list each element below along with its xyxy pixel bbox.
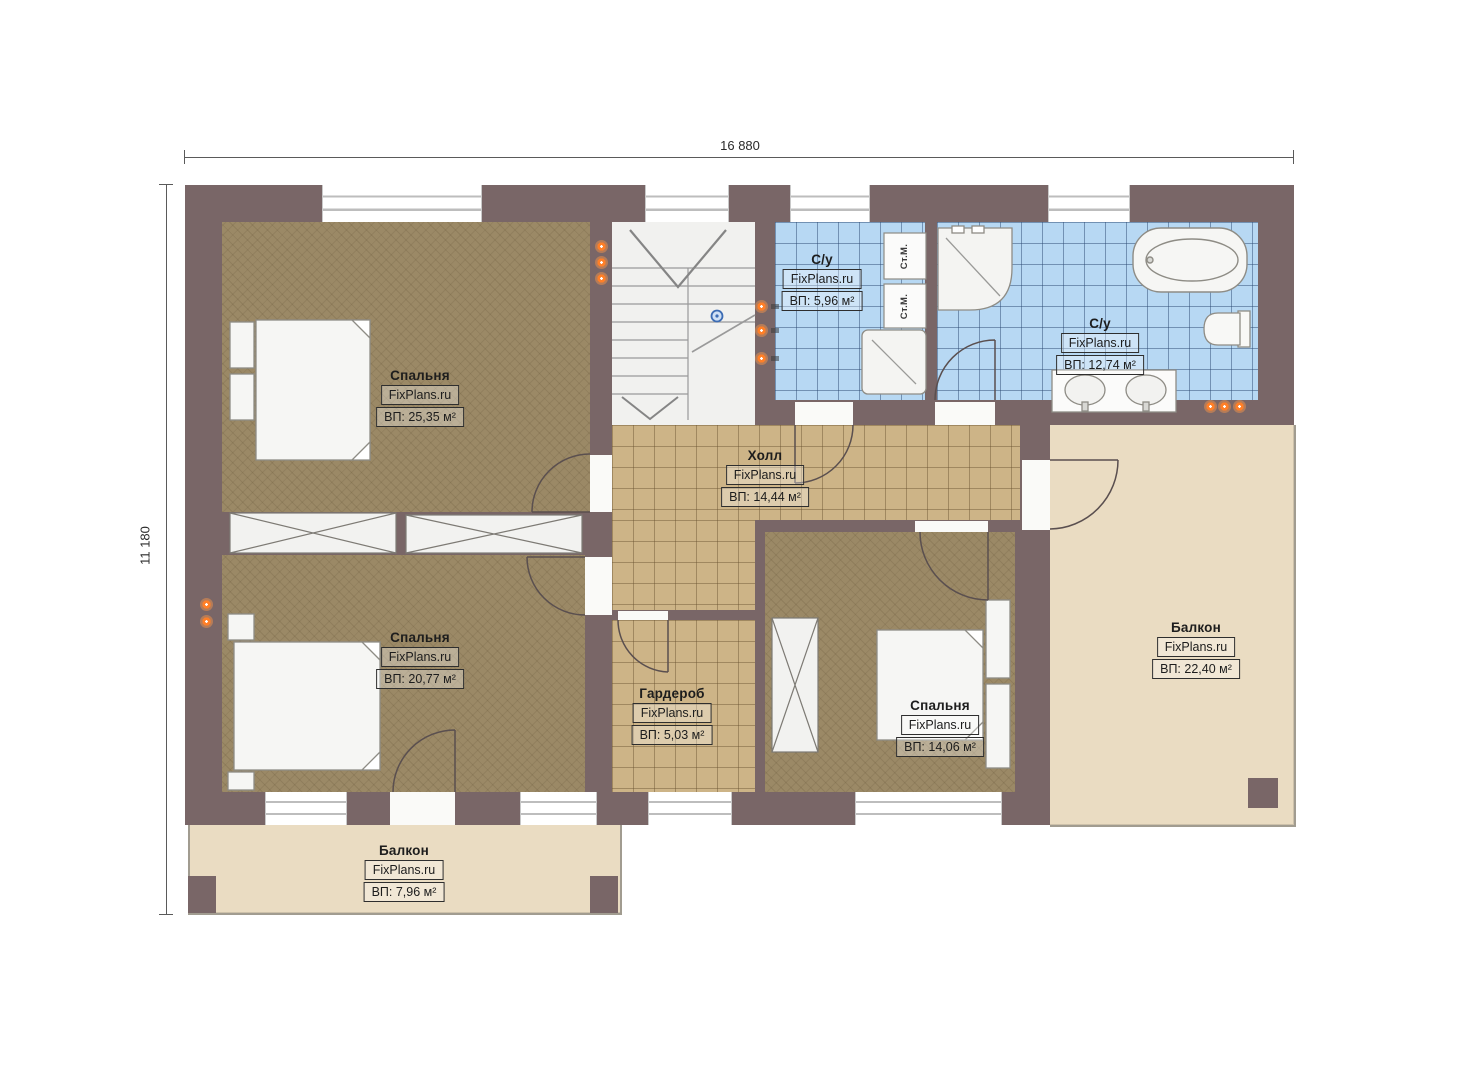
top-dimension-line: [185, 157, 1294, 158]
door-opening-bedroom3: [915, 521, 988, 532]
room-label-balcony-bottom: Балкон FixPlans.ru ВП: 7,96 м²: [364, 843, 445, 902]
door-opening-bathroom-small: [795, 402, 853, 425]
watermark: FixPlans.ru: [1061, 333, 1140, 353]
floor-plan: 16 880 11 180: [0, 0, 1474, 1080]
washing-machine-label-2: Ст.М.: [884, 284, 926, 328]
outlet-icon: [1218, 400, 1231, 413]
hall-corridor-floor: [612, 520, 755, 610]
outlet-tag: [771, 328, 779, 333]
balcony-bottom-post-right: [590, 876, 618, 913]
room-area: ВП: 14,06 м²: [896, 737, 984, 757]
room-area: ВП: 5,03 м²: [632, 725, 713, 745]
room-name: Балкон: [1171, 620, 1221, 635]
room-label-bedroom1: Спальня FixPlans.ru ВП: 25,35 м²: [376, 368, 464, 427]
room-name: С/у: [811, 252, 833, 267]
balcony-right-corner-post: [1248, 778, 1278, 808]
left-dimension-line: [166, 185, 167, 915]
room-area: ВП: 20,77 м²: [376, 669, 464, 689]
room-name: Балкон: [379, 843, 429, 858]
outlet-icon: [200, 615, 213, 628]
watermark: FixPlans.ru: [901, 715, 980, 735]
room-name: Спальня: [910, 698, 970, 713]
watermark: FixPlans.ru: [381, 647, 460, 667]
outlet-icon: [755, 300, 768, 313]
watermark: FixPlans.ru: [783, 269, 862, 289]
outlet-icon: [595, 272, 608, 285]
room-area: ВП: 22,40 м²: [1152, 659, 1240, 679]
outlet-icon: [200, 598, 213, 611]
door-opening-balcony-right: [1022, 460, 1050, 530]
room-label-bedroom2: Спальня FixPlans.ru ВП: 20,77 м²: [376, 630, 464, 689]
outlet-icon: [755, 352, 768, 365]
room-name: Холл: [748, 448, 783, 463]
left-dimension-label: 11 180: [138, 506, 153, 586]
outlet-icon: [595, 256, 608, 269]
window-top-4: [1048, 185, 1130, 222]
outlet-icon: [1233, 400, 1246, 413]
outlet-tag: [771, 356, 779, 361]
door-opening-bedroom2: [585, 557, 612, 615]
watermark: FixPlans.ru: [726, 465, 805, 485]
left-dimension-tick-top: [159, 184, 173, 185]
room-area: ВП: 12,74 м²: [1056, 355, 1144, 375]
room-area: ВП: 25,35 м²: [376, 407, 464, 427]
room-name: Гардероб: [639, 686, 704, 701]
room-name: Спальня: [390, 630, 450, 645]
room-label-bedroom3: Спальня FixPlans.ru ВП: 14,06 м²: [896, 698, 984, 757]
outlet-tag: [771, 304, 779, 309]
room-area: ВП: 7,96 м²: [364, 882, 445, 902]
room-area: ВП: 5,96 м²: [782, 291, 863, 311]
room-label-wardrobe: Гардероб FixPlans.ru ВП: 5,03 м²: [632, 686, 713, 745]
stairwell-floor: [612, 222, 755, 425]
outlet-icon: [1204, 400, 1217, 413]
left-dimension-tick-bottom: [159, 914, 173, 915]
room-label-bathroom-small: С/у FixPlans.ru ВП: 5,96 м²: [782, 252, 863, 311]
hall-floor: [612, 425, 1020, 520]
bedroom1-floor: [222, 222, 590, 512]
outlet-icon: [755, 324, 768, 337]
watermark: FixPlans.ru: [365, 860, 444, 880]
door-opening-wardrobe: [618, 611, 668, 620]
window-bottom-4: [855, 792, 1002, 825]
door-opening-bathroom-large: [935, 402, 995, 425]
top-dimension-label: 16 880: [720, 138, 760, 153]
window-top-2: [645, 185, 729, 222]
watermark: FixPlans.ru: [381, 385, 460, 405]
room-area: ВП: 14,44 м²: [721, 487, 809, 507]
outlet-icon: [595, 240, 608, 253]
window-bottom-1: [265, 792, 347, 825]
window-bottom-3: [648, 792, 732, 825]
balcony-bottom-post-left: [188, 876, 216, 913]
door-opening-bedroom2-balcony: [390, 792, 455, 825]
window-bottom-2: [520, 792, 597, 825]
room-name: Спальня: [390, 368, 450, 383]
washing-machine-label-1: Ст.М.: [884, 233, 926, 279]
window-top-1: [322, 185, 482, 222]
window-top-3: [790, 185, 870, 222]
watermark: FixPlans.ru: [1157, 637, 1236, 657]
door-opening-bedroom1: [590, 455, 612, 512]
top-dimension-tick-left: [184, 150, 185, 164]
top-dimension-tick-right: [1293, 150, 1294, 164]
room-label-hall: Холл FixPlans.ru ВП: 14,44 м²: [721, 448, 809, 507]
watermark: FixPlans.ru: [633, 703, 712, 723]
room-name: С/у: [1089, 316, 1111, 331]
room-label-bathroom-large: С/у FixPlans.ru ВП: 12,74 м²: [1056, 316, 1144, 375]
room-label-balcony-right: Балкон FixPlans.ru ВП: 22,40 м²: [1152, 620, 1240, 679]
